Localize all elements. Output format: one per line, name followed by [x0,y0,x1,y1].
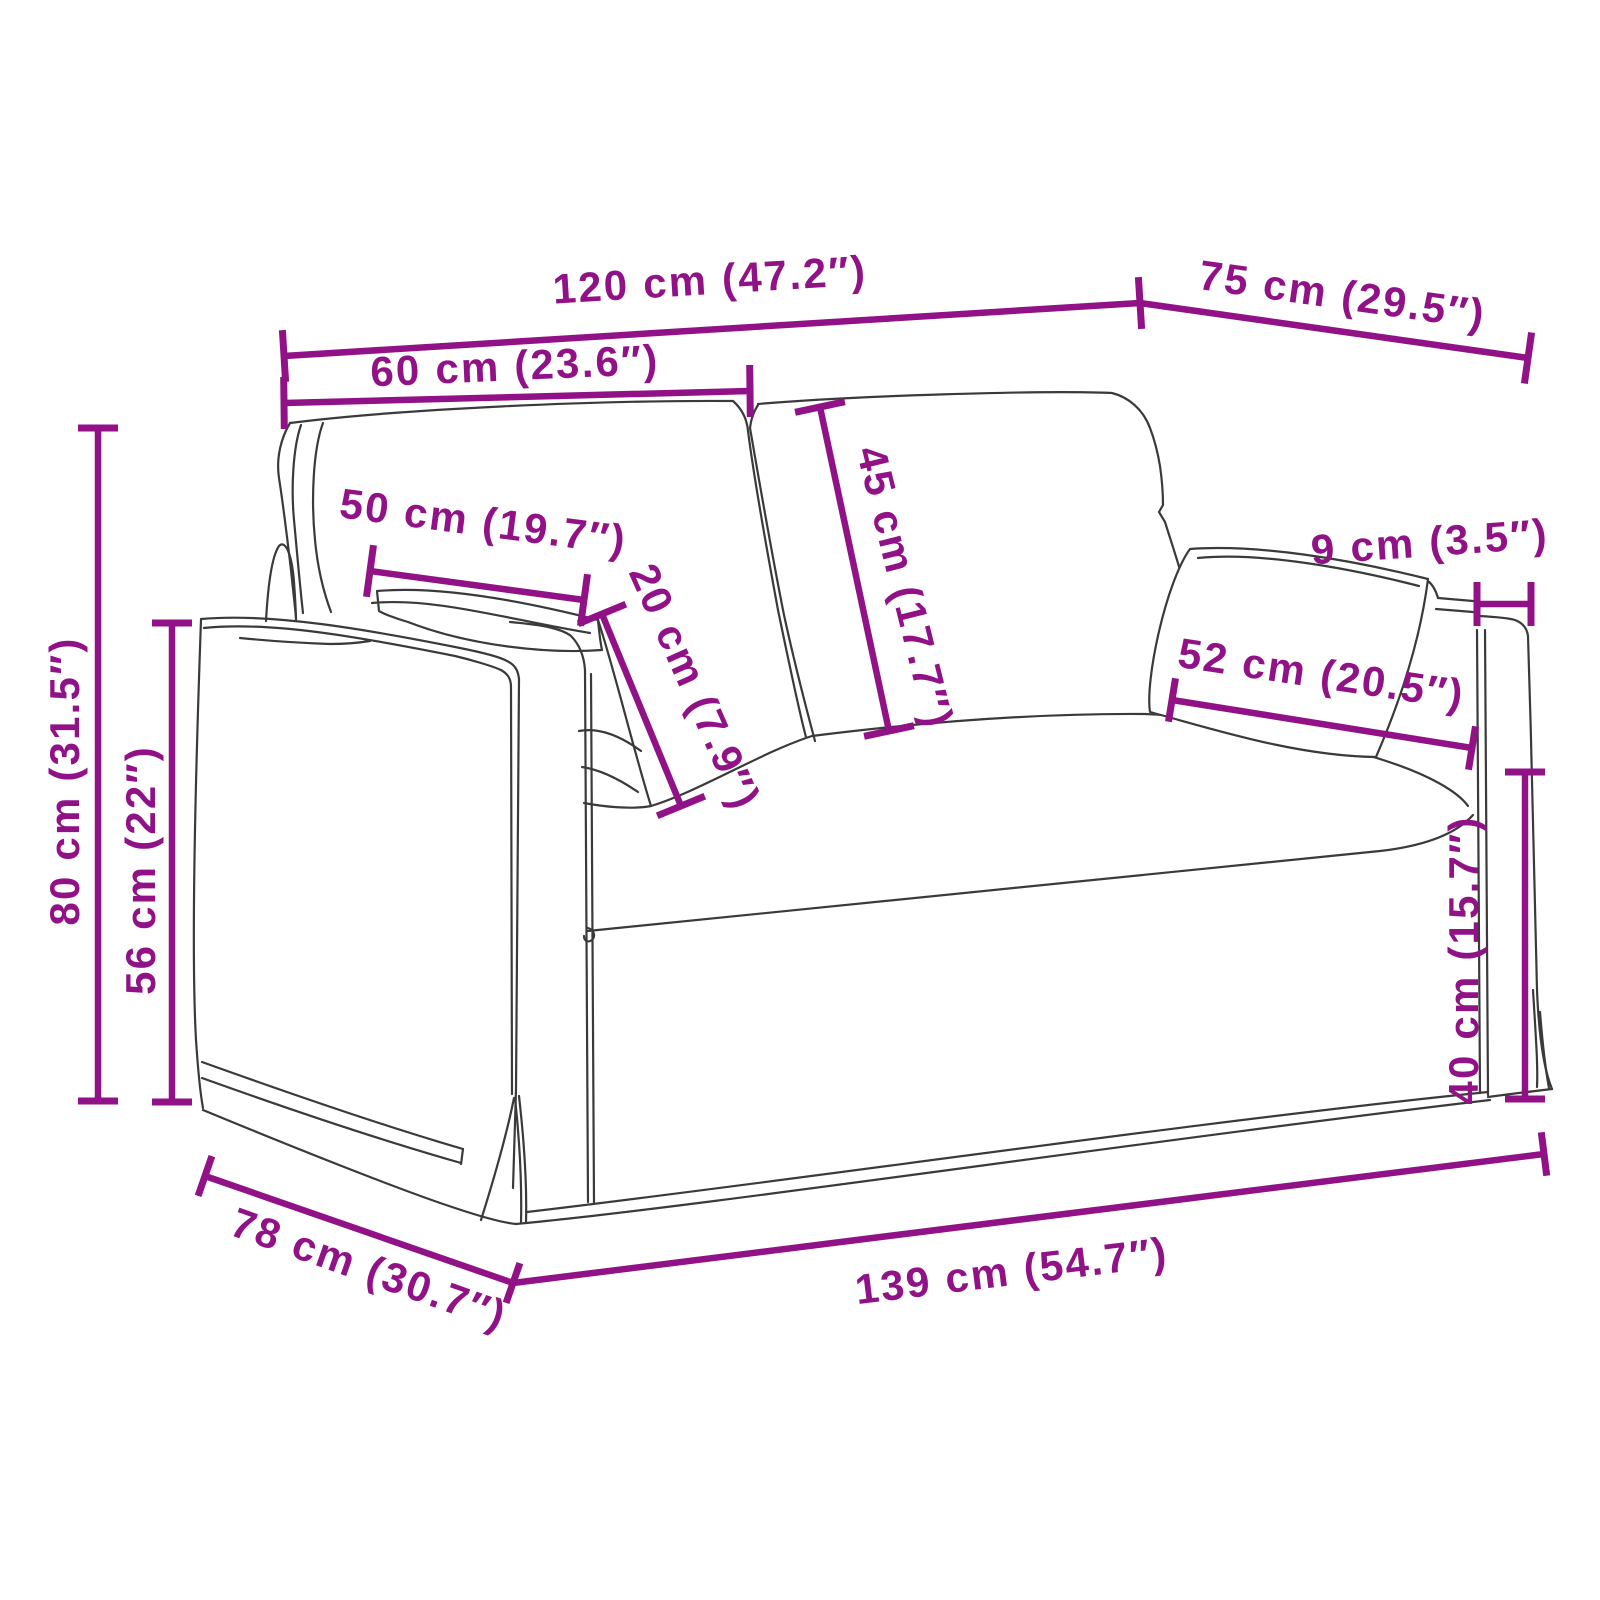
svg-text:56 cm (22″): 56 cm (22″) [117,745,164,995]
svg-text:9 cm (3.5″): 9 cm (3.5″) [1309,510,1550,573]
svg-text:120 cm (47.2″): 120 cm (47.2″) [551,247,868,313]
svg-text:40 cm (15.7″): 40 cm (15.7″) [1440,815,1487,1104]
svg-text:80 cm (31.5″): 80 cm (31.5″) [41,636,88,925]
svg-text:45 cm (17.7″): 45 cm (17.7″) [848,441,964,733]
svg-text:60 cm (23.6″): 60 cm (23.6″) [369,336,660,396]
svg-text:139 cm (54.7″): 139 cm (54.7″) [853,1228,1171,1313]
svg-text:75 cm (29.5″): 75 cm (29.5″) [1196,251,1489,338]
svg-text:50 cm (19.7″): 50 cm (19.7″) [337,479,630,563]
